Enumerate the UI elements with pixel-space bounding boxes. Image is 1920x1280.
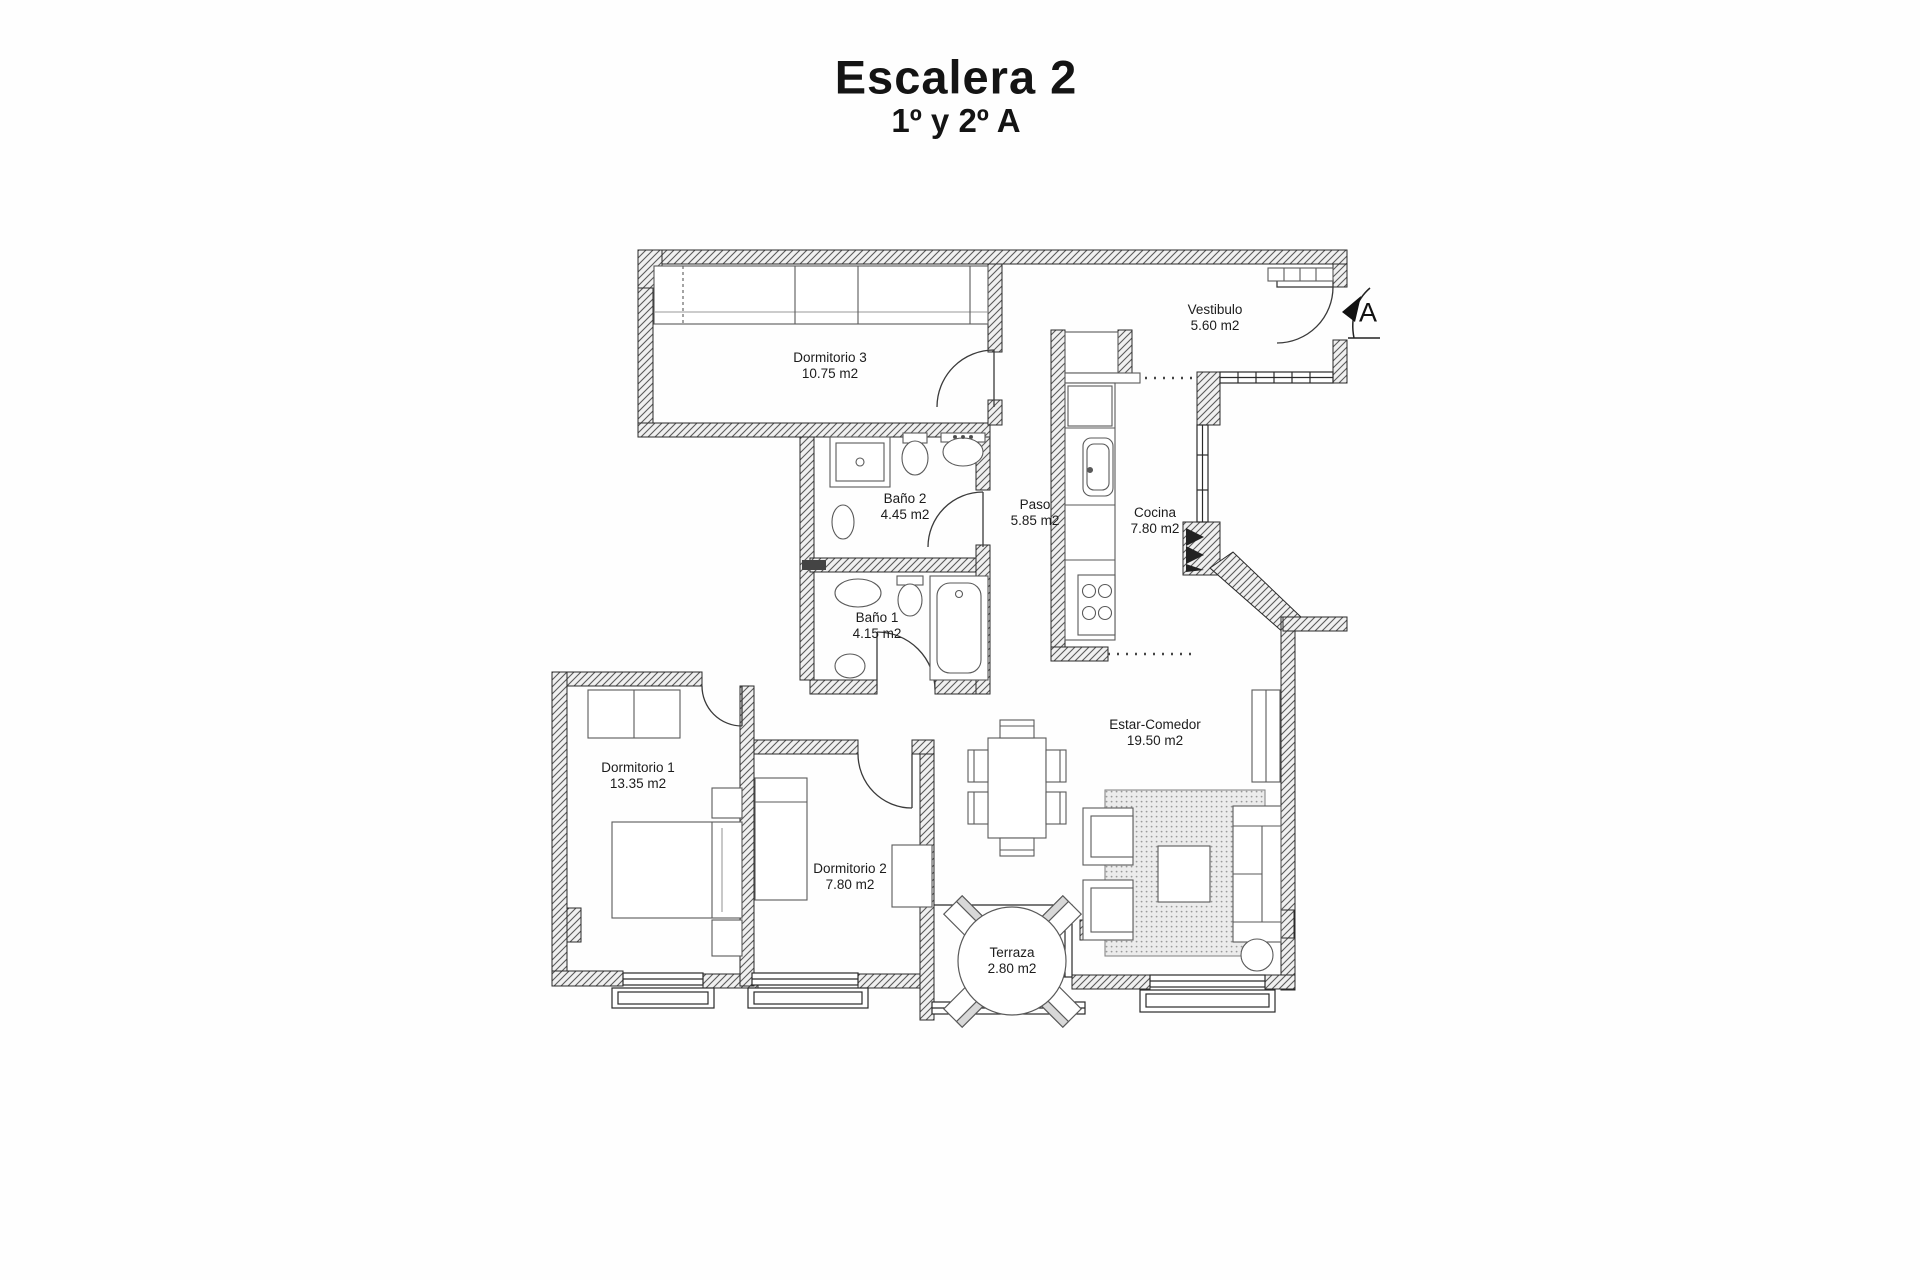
room-name: Paso	[1020, 497, 1051, 512]
kitchen-counter	[1065, 383, 1115, 640]
room-area: 5.85 m2	[1011, 513, 1060, 528]
bed-dormitorio-1	[612, 788, 742, 956]
room-area: 4.15 m2	[853, 626, 902, 641]
room-label-estar-comedor: Estar-Comedor 19.50 m2	[1109, 717, 1201, 749]
room-name: Baño 2	[884, 491, 927, 506]
room-name: Baño 1	[856, 610, 899, 625]
room-area: 19.50 m2	[1127, 733, 1183, 748]
room-name: Terraza	[989, 945, 1034, 960]
room-name: Dormitorio 1	[601, 760, 675, 775]
bathroom-2-fixtures	[830, 433, 985, 539]
room-area: 2.80 m2	[988, 961, 1037, 976]
floor-plan-drawing	[0, 0, 1920, 1280]
room-area: 13.35 m2	[610, 776, 666, 791]
entrance-unit-label: A	[1359, 298, 1377, 329]
room-area: 10.75 m2	[802, 366, 858, 381]
room-name: Cocina	[1134, 505, 1176, 520]
room-area: 5.60 m2	[1191, 318, 1240, 333]
room-label-vestibulo: Vestibulo 5.60 m2	[1188, 302, 1243, 334]
room-area: 4.45 m2	[881, 507, 930, 522]
room-label-paso: Paso 5.85 m2	[1011, 497, 1060, 529]
room-name: Dormitorio 2	[813, 861, 887, 876]
room-area: 7.80 m2	[826, 877, 875, 892]
room-label-terraza: Terraza 2.80 m2	[988, 945, 1037, 977]
room-label-dormitorio-1: Dormitorio 1 13.35 m2	[601, 760, 675, 792]
room-label-cocina: Cocina 7.80 m2	[1131, 505, 1180, 537]
floor-plan-page: Escalera 2 1º y 2º A	[0, 0, 1920, 1280]
room-name: Vestibulo	[1188, 302, 1243, 317]
room-label-dormitorio-3: Dormitorio 3 10.75 m2	[793, 350, 867, 382]
room-label-bano-2: Baño 2 4.45 m2	[881, 491, 930, 523]
room-name: Estar-Comedor	[1109, 717, 1201, 732]
room-label-dormitorio-2: Dormitorio 2 7.80 m2	[813, 861, 887, 893]
room-name: Dormitorio 3	[793, 350, 867, 365]
room-label-bano-1: Baño 1 4.15 m2	[853, 610, 902, 642]
room-area: 7.80 m2	[1131, 521, 1180, 536]
